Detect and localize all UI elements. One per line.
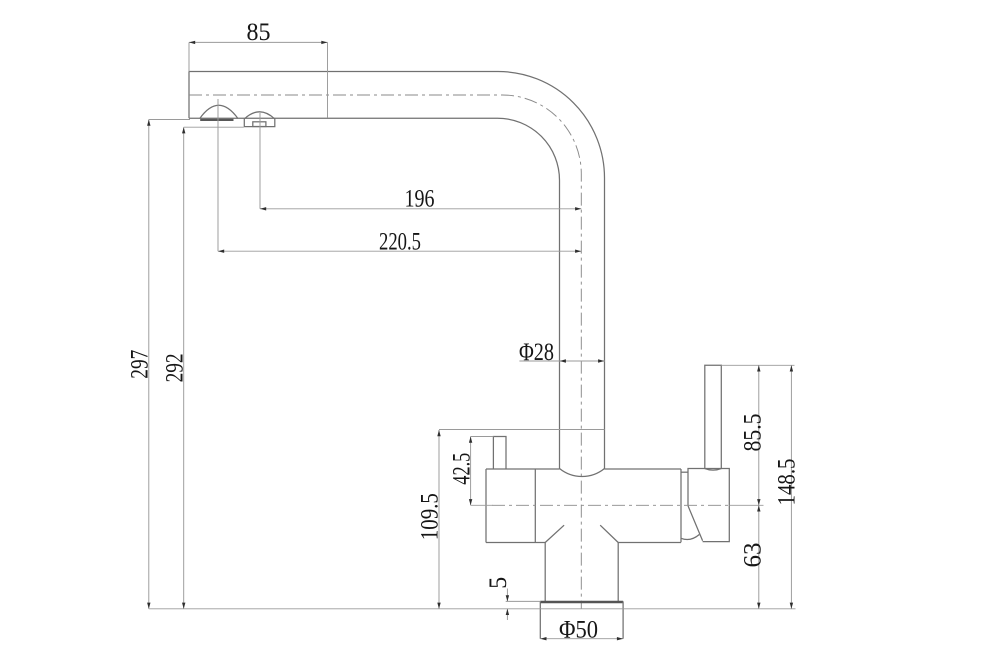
svg-text:Φ50: Φ50: [559, 616, 598, 643]
svg-text:85.5: 85.5: [740, 414, 767, 452]
svg-text:297: 297: [127, 350, 154, 379]
svg-text:196: 196: [405, 186, 435, 213]
svg-text:42.5: 42.5: [449, 453, 476, 485]
svg-text:109.5: 109.5: [417, 493, 444, 540]
svg-text:Φ28: Φ28: [519, 339, 554, 366]
svg-text:220.5: 220.5: [379, 229, 421, 256]
svg-text:85: 85: [247, 19, 271, 46]
svg-text:292: 292: [162, 353, 189, 382]
svg-text:63: 63: [740, 543, 767, 568]
svg-text:148.5: 148.5: [774, 459, 801, 506]
svg-text:5: 5: [485, 577, 512, 589]
